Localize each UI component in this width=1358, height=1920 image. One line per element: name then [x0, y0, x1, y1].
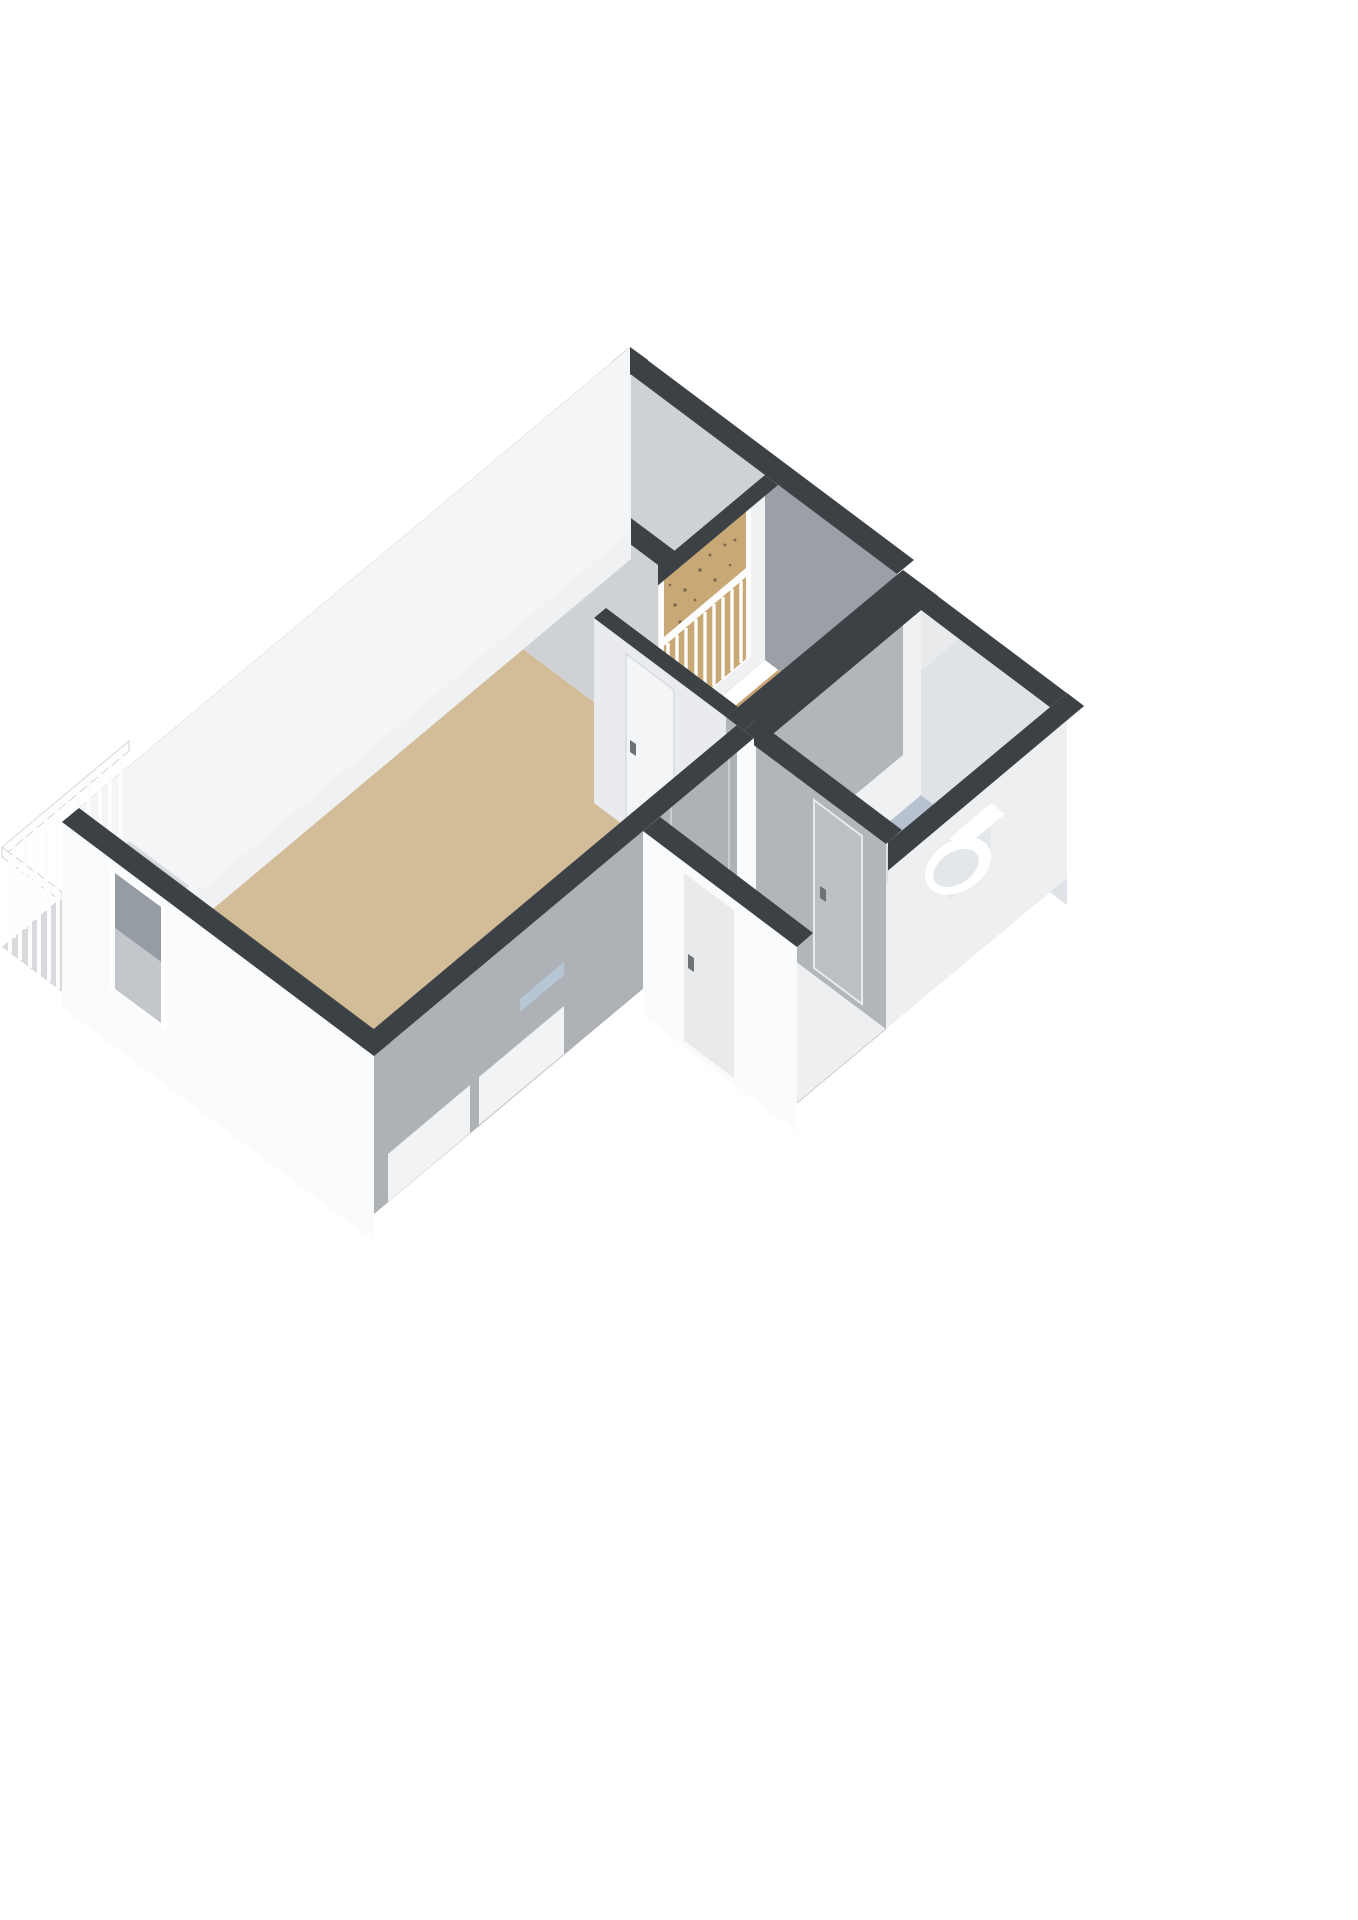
floorplan-3d-render	[0, 0, 1358, 1920]
floorplan-canvas	[0, 0, 1358, 1920]
bathroom-door	[814, 800, 862, 1004]
